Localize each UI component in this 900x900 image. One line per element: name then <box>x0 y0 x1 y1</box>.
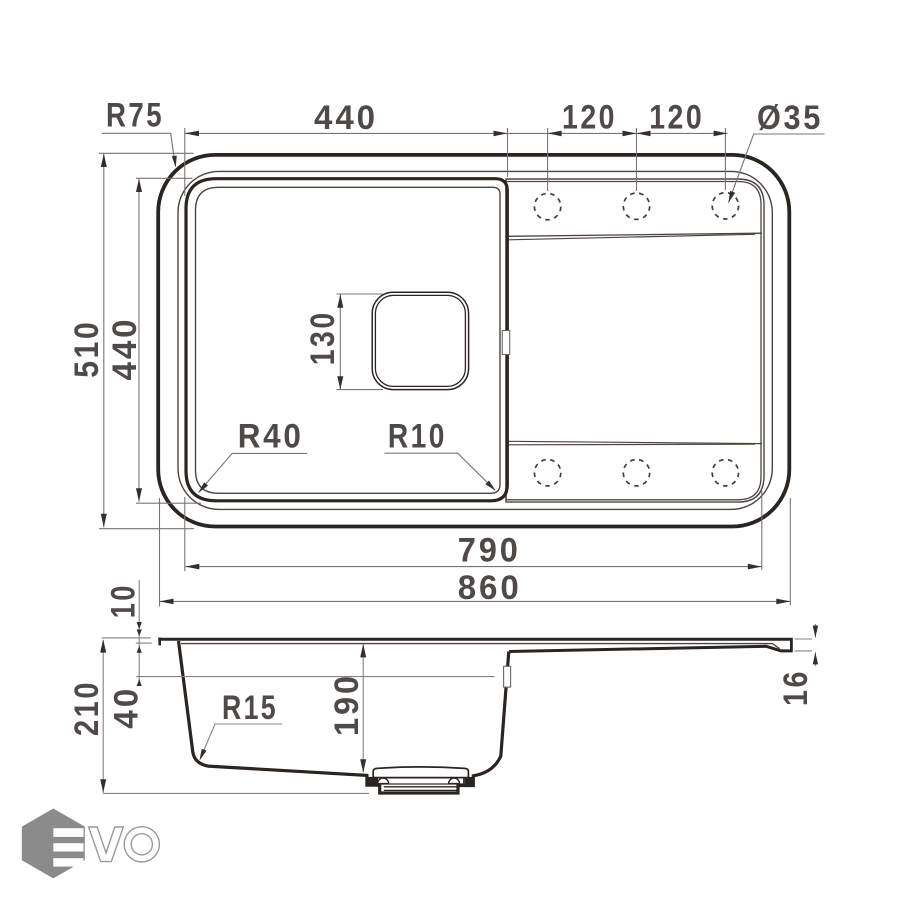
svg-text:440: 440 <box>314 99 378 137</box>
svg-text:R40: R40 <box>238 418 304 456</box>
svg-text:790: 790 <box>458 532 521 570</box>
svg-text:10: 10 <box>104 583 142 618</box>
svg-text:16: 16 <box>777 669 815 706</box>
svg-text:130: 130 <box>304 310 342 365</box>
svg-text:210: 210 <box>68 680 106 736</box>
svg-text:120: 120 <box>649 99 704 137</box>
svg-text:190: 190 <box>328 673 366 736</box>
svg-text:860: 860 <box>458 569 522 607</box>
svg-text:120: 120 <box>562 99 617 137</box>
svg-text:510: 510 <box>68 320 106 378</box>
svg-text:Ø35: Ø35 <box>757 99 823 137</box>
svg-text:R15: R15 <box>222 689 278 727</box>
svg-text:R10: R10 <box>388 418 447 456</box>
svg-text:40: 40 <box>107 686 145 729</box>
svg-text:440: 440 <box>106 317 144 381</box>
svg-text:R75: R75 <box>106 96 164 134</box>
